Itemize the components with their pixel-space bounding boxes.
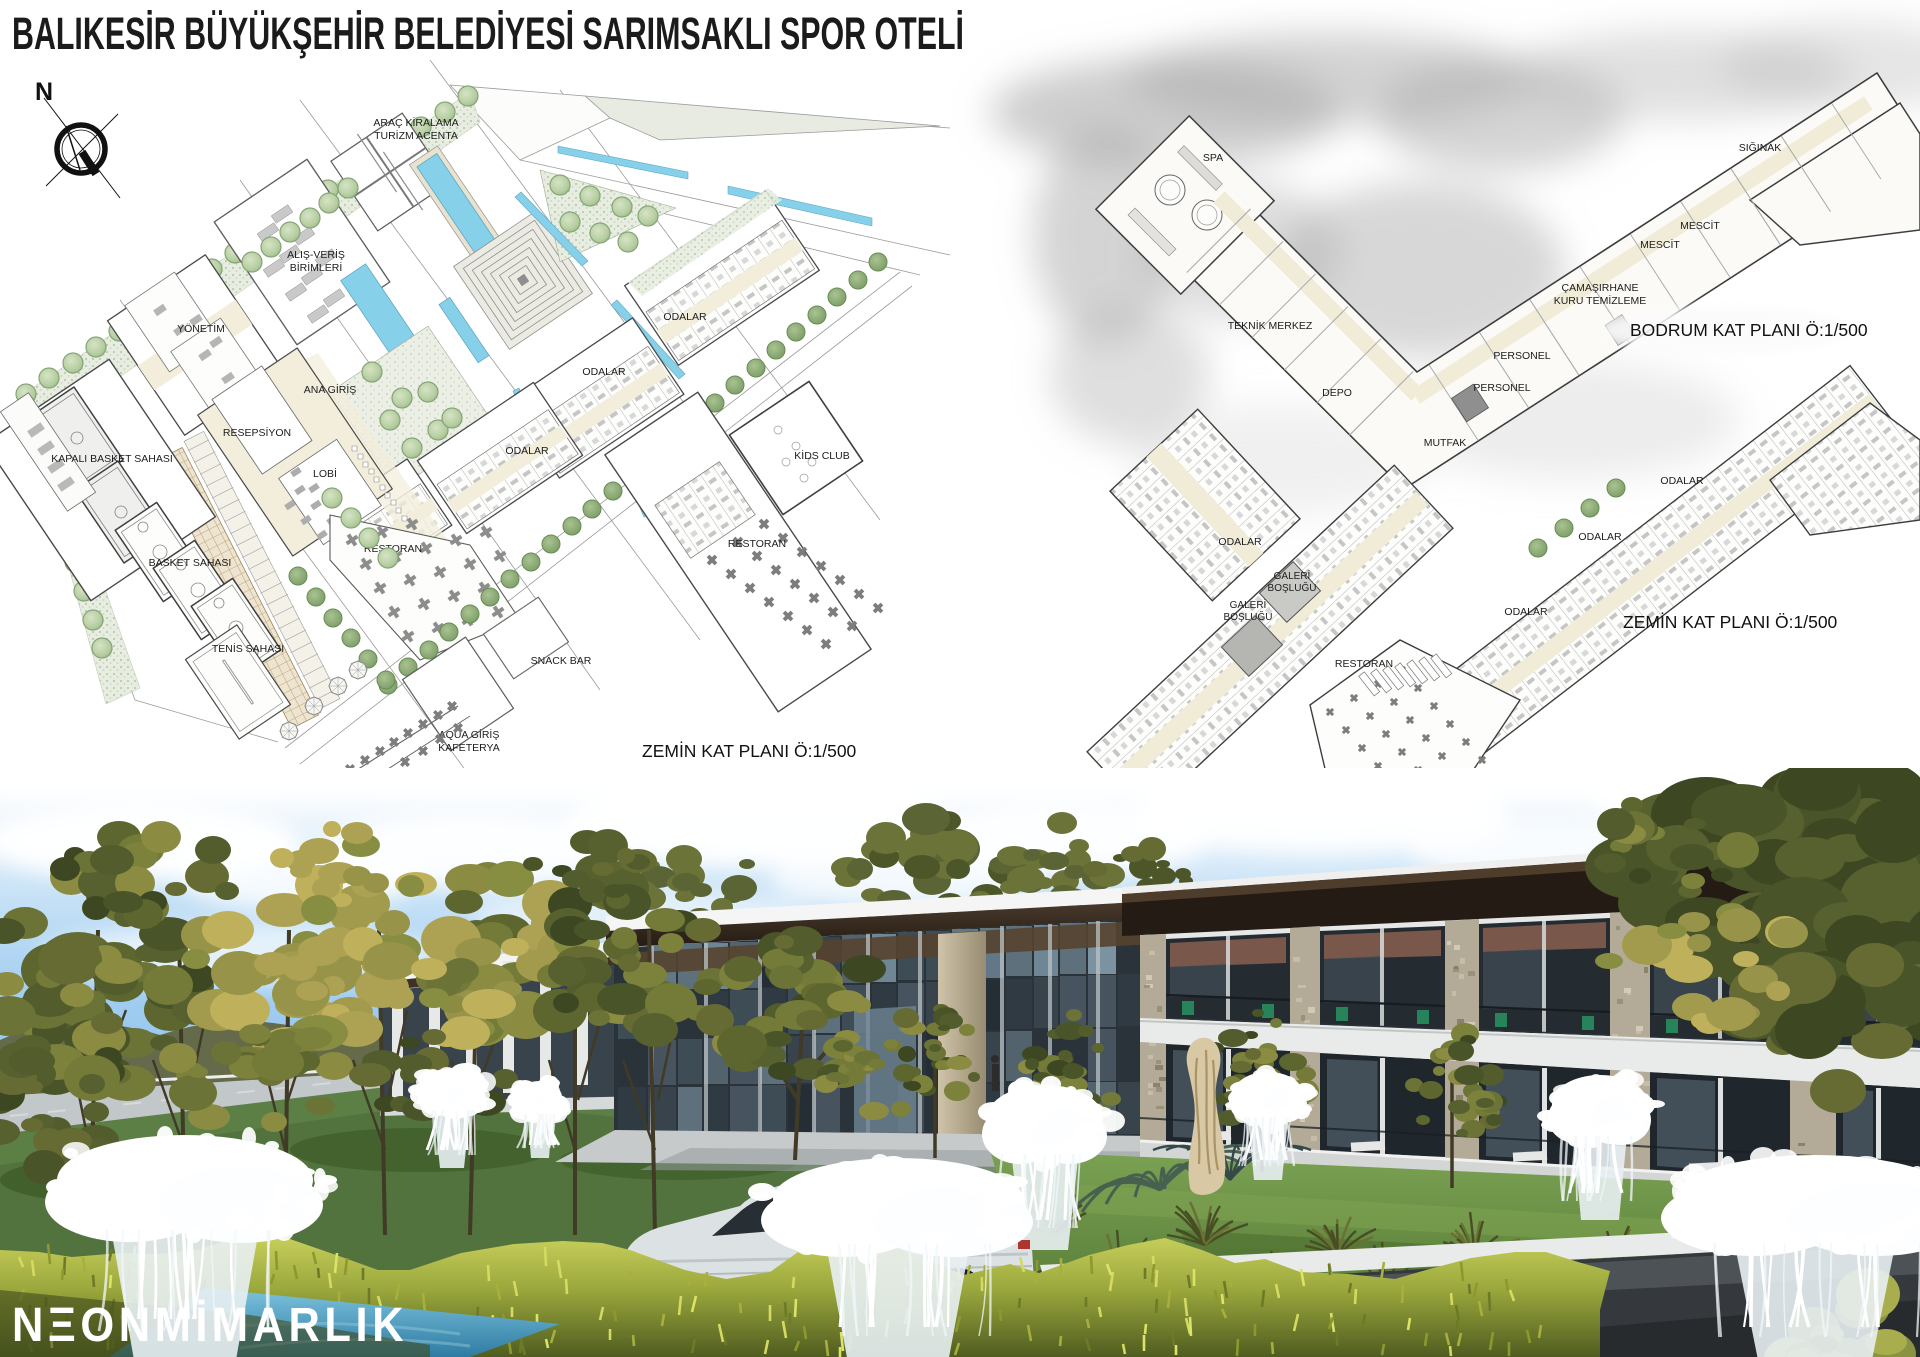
svg-text:ODALAR: ODALAR [582, 366, 626, 378]
svg-text:NΞONMİMARLIK: NΞONMİMARLIK [12, 1299, 408, 1352]
svg-text:BALIKESİR BÜYÜKŞEHİR BELEDİYES: BALIKESİR BÜYÜKŞEHİR BELEDİYESİ SARIMSAK… [12, 8, 964, 59]
svg-text:YÖNETİM: YÖNETİM [177, 322, 225, 335]
svg-text:ZEMİN KAT PLANI Ö:1/500: ZEMİN KAT PLANI Ö:1/500 [1623, 612, 1838, 632]
svg-text:GALERİ: GALERİ [1274, 569, 1311, 582]
svg-text:ODALAR: ODALAR [663, 311, 707, 323]
svg-text:SNACK BAR: SNACK BAR [531, 655, 592, 667]
svg-text:TURİZM ACENTA: TURİZM ACENTA [374, 129, 458, 142]
svg-text:ODALAR: ODALAR [1578, 531, 1622, 543]
svg-text:PERSONEL: PERSONEL [1473, 382, 1530, 394]
svg-text:BODRUM KAT PLANI Ö:1/500: BODRUM KAT PLANI Ö:1/500 [1630, 320, 1868, 340]
svg-text:ARAÇ KİRALAMA: ARAÇ KİRALAMA [373, 116, 458, 129]
svg-text:PERSONEL: PERSONEL [1493, 350, 1550, 362]
svg-text:MESCİT: MESCİT [1640, 238, 1680, 251]
svg-text:RESEPSİYON: RESEPSİYON [223, 426, 291, 439]
svg-text:MESCİT: MESCİT [1680, 219, 1720, 232]
svg-text:SPA: SPA [1203, 152, 1223, 164]
svg-text:BOŞLUĞU: BOŞLUĞU [1268, 581, 1317, 594]
svg-text:ZEMİN KAT PLANI Ö:1/500: ZEMİN KAT PLANI Ö:1/500 [642, 741, 857, 761]
svg-text:GALERİ: GALERİ [1230, 598, 1267, 611]
svg-text:KURU TEMİZLEME: KURU TEMİZLEME [1554, 294, 1647, 307]
svg-text:LOBİ: LOBİ [313, 467, 337, 480]
svg-text:ALIŞ-VERİŞ: ALIŞ-VERİŞ [287, 248, 345, 261]
svg-text:BASKET SAHASI: BASKET SAHASI [149, 557, 232, 569]
svg-text:ÇAMAŞIRHANE: ÇAMAŞIRHANE [1561, 282, 1638, 294]
svg-text:ODALAR: ODALAR [1660, 475, 1704, 487]
svg-text:TENİS SAHASI: TENİS SAHASI [212, 642, 284, 655]
svg-text:RESTORAN: RESTORAN [1335, 658, 1393, 670]
svg-text:RESTORAN: RESTORAN [728, 538, 786, 550]
svg-text:KİDS CLUB: KİDS CLUB [794, 449, 849, 462]
svg-text:ODALAR: ODALAR [1218, 536, 1262, 548]
svg-text:ODALAR: ODALAR [1504, 606, 1548, 618]
svg-text:BİRİMLERİ: BİRİMLERİ [290, 261, 343, 274]
svg-text:MUTFAK: MUTFAK [1424, 437, 1467, 449]
svg-text:ANA GİRİŞ: ANA GİRİŞ [304, 383, 357, 396]
svg-text:SIĞINAK: SIĞINAK [1739, 141, 1782, 154]
svg-text:ODALAR: ODALAR [505, 445, 549, 457]
svg-text:N: N [35, 78, 53, 106]
svg-text:BOŞLUĞU: BOŞLUĞU [1224, 610, 1273, 623]
svg-text:KAPALI BASKET SAHASI: KAPALI BASKET SAHASI [51, 453, 173, 465]
svg-text:DEPO: DEPO [1322, 387, 1352, 399]
svg-text:TEKNİK MERKEZ: TEKNİK MERKEZ [1228, 319, 1313, 332]
svg-text:KAFETERYA: KAFETERYA [438, 742, 499, 754]
